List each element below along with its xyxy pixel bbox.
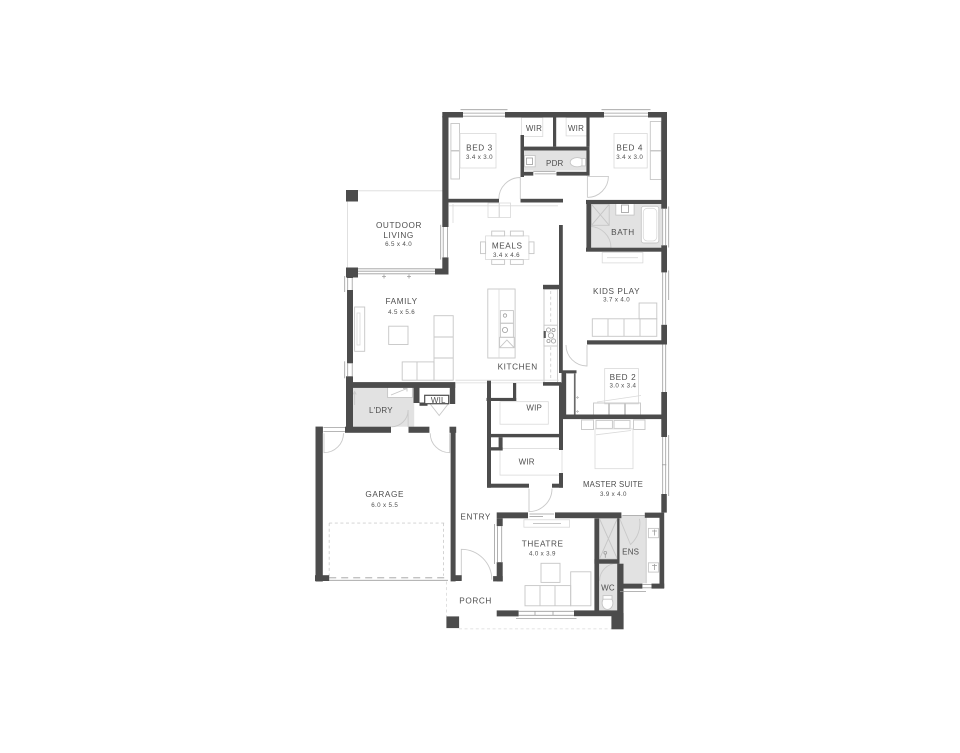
svg-text:3.0 x 3.4: 3.0 x 3.4 [609, 383, 636, 390]
svg-text:ENTRY: ENTRY [460, 513, 491, 522]
svg-text:4.0 x 3.9: 4.0 x 3.9 [529, 551, 556, 558]
svg-text:3.9 x 4.0: 3.9 x 4.0 [600, 491, 627, 498]
svg-text:LIVING: LIVING [383, 231, 413, 240]
svg-text:WIR: WIR [568, 124, 584, 133]
svg-text:MEALS: MEALS [492, 242, 523, 251]
svg-text:3.7 x 4.0: 3.7 x 4.0 [603, 297, 630, 304]
svg-text:KITCHEN: KITCHEN [498, 363, 538, 372]
svg-text:3.4 x 3.0: 3.4 x 3.0 [466, 154, 493, 161]
svg-text:4.5 x 5.6: 4.5 x 5.6 [388, 309, 415, 316]
svg-text:6.0 x 5.5: 6.0 x 5.5 [371, 502, 398, 509]
svg-text:BED 2: BED 2 [610, 373, 637, 382]
svg-text:GARAGE: GARAGE [365, 490, 404, 499]
svg-text:ENS: ENS [622, 547, 639, 556]
svg-text:6.5 x 4.0: 6.5 x 4.0 [385, 241, 412, 248]
svg-text:OUTDOOR: OUTDOOR [376, 221, 422, 230]
svg-text:WIL: WIL [431, 396, 446, 405]
svg-text:WIP: WIP [526, 404, 542, 413]
svg-text:KIDS PLAY: KIDS PLAY [593, 287, 640, 296]
svg-text:PDR: PDR [546, 159, 564, 168]
svg-text:BED 4: BED 4 [616, 144, 643, 153]
svg-text:FAMILY: FAMILY [386, 297, 418, 306]
svg-text:WC: WC [601, 584, 615, 593]
svg-text:PORCH: PORCH [459, 597, 492, 606]
svg-text:3.4 x 3.0: 3.4 x 3.0 [616, 154, 643, 161]
svg-text:BATH: BATH [611, 228, 635, 237]
svg-text:BED 3: BED 3 [466, 144, 493, 153]
svg-text:WIR: WIR [526, 124, 542, 133]
svg-text:THEATRE: THEATRE [522, 539, 564, 548]
svg-text:L'DRY: L'DRY [369, 406, 393, 415]
svg-text:MASTER SUITE: MASTER SUITE [583, 480, 643, 489]
svg-text:3.4 x 4.6: 3.4 x 4.6 [493, 252, 520, 259]
svg-text:WIR: WIR [519, 457, 535, 466]
